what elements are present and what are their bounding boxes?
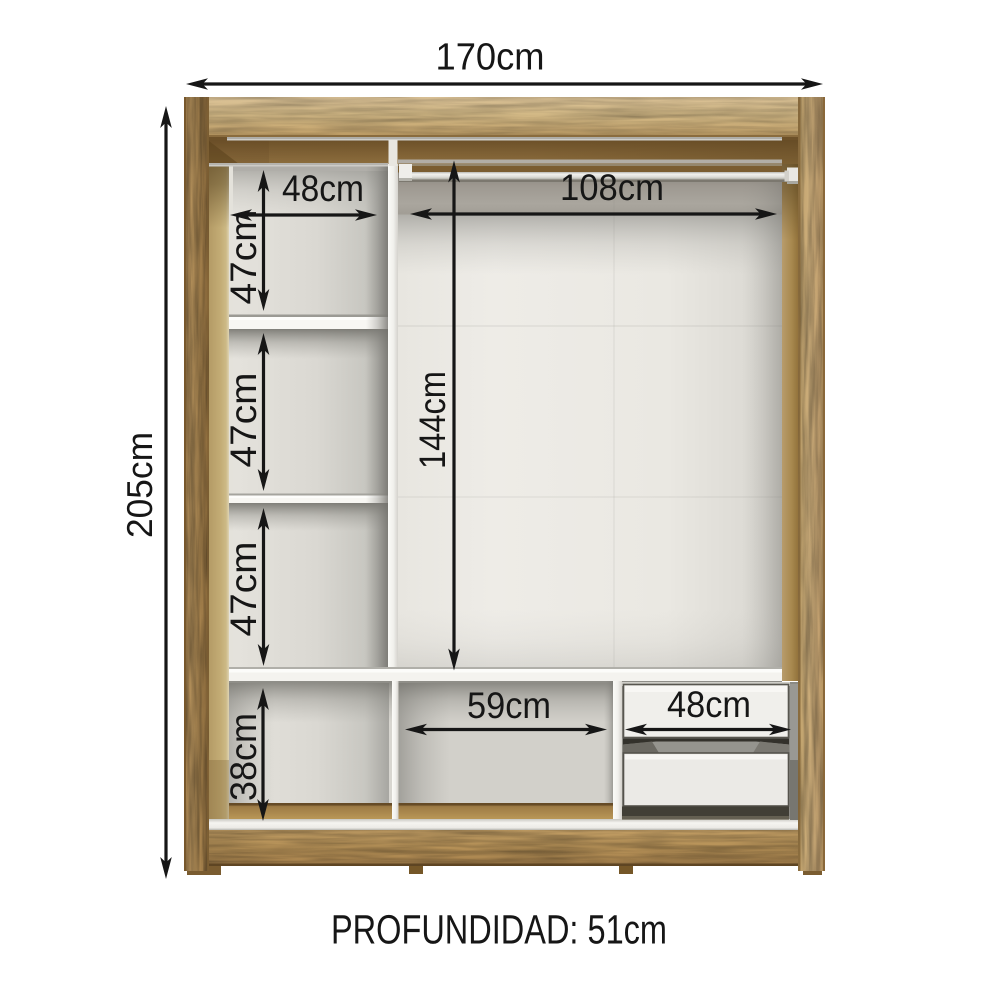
svg-text:59cm: 59cm [467,685,551,726]
svg-text:38cm: 38cm [223,713,264,801]
svg-text:47cm: 47cm [223,373,264,468]
svg-text:48cm: 48cm [667,684,751,725]
svg-text:47cm: 47cm [223,542,264,637]
svg-text:PROFUNDIDAD: 51cm: PROFUNDIDAD: 51cm [331,907,667,953]
svg-text:170cm: 170cm [436,37,545,79]
svg-text:205cm: 205cm [119,432,160,538]
svg-text:48cm: 48cm [282,168,364,209]
svg-text:108cm: 108cm [560,167,664,208]
svg-text:47cm: 47cm [223,210,264,305]
svg-text:144cm: 144cm [412,371,453,469]
